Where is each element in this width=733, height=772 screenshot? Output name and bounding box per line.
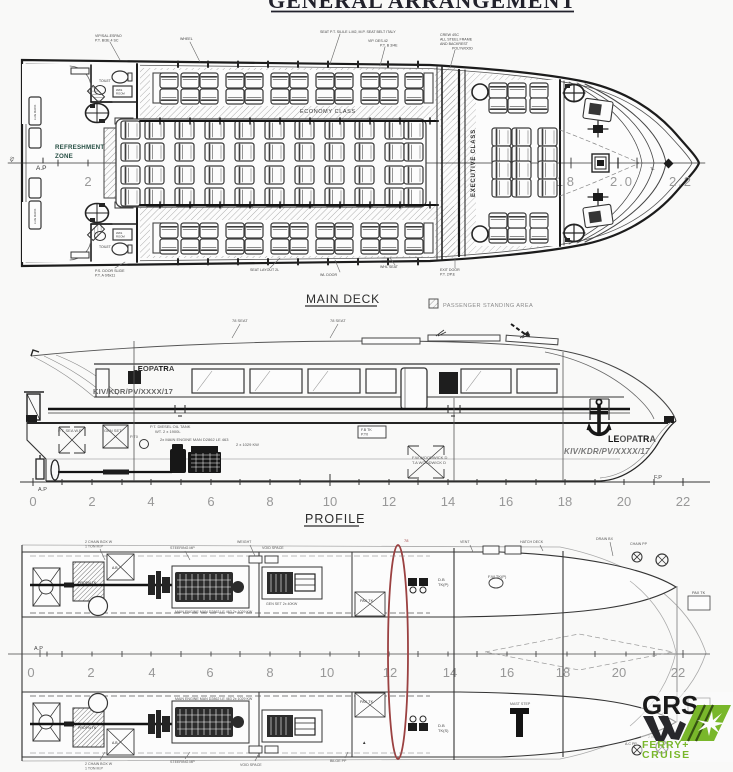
svg-text:A.P: A.P	[38, 487, 47, 493]
svg-text:P.T. SEA W.P: P.T. SEA W.P	[58, 428, 82, 433]
svg-text:1 TON M.P: 1 TON M.P	[85, 767, 103, 771]
svg-text:12: 12	[383, 665, 397, 680]
svg-text:2: 2	[84, 174, 91, 189]
svg-text:TOILET: TOILET	[99, 79, 111, 83]
svg-text:ZONE: ZONE	[55, 153, 73, 160]
svg-text:78 SEAT: 78 SEAT	[232, 318, 248, 323]
svg-text:AND BACKREST: AND BACKREST	[440, 42, 469, 46]
svg-text:F.W TK(P): F.W TK(P)	[488, 574, 507, 579]
svg-text:SEAT LAYOUT 2L: SEAT LAYOUT 2L	[250, 268, 279, 272]
svg-text:14: 14	[441, 494, 455, 509]
svg-text:MAIN DECK: MAIN DECK	[306, 292, 380, 306]
svg-text:WEIGHT: WEIGHT	[237, 540, 252, 544]
svg-text:P.T. B/3E 4 SC: P.T. B/3E 4 SC	[95, 39, 119, 43]
svg-text:F.B TK: F.B TK	[361, 428, 372, 432]
svg-text:KIV/KDR/PV/XXXX/17: KIV/KDR/PV/XXXX/17	[564, 447, 650, 456]
svg-text:16: 16	[499, 494, 513, 509]
svg-text:MAIN ENGINE MAN D2862 LE 463 2: MAIN ENGINE MAN D2862 LE 463 2x 1029 KW	[175, 610, 253, 614]
svg-text:8: 8	[266, 665, 273, 680]
svg-text:ROOM: ROOM	[116, 92, 125, 96]
svg-text:1 8: 1 8	[556, 174, 574, 189]
svg-text:16: 16	[500, 665, 514, 680]
svg-text:PASSENGER STANDING AREA: PASSENGER STANDING AREA	[443, 303, 533, 309]
svg-text:0: 0	[29, 494, 36, 509]
svg-text:LUG RACK: LUG RACK	[33, 105, 37, 120]
svg-text:GRS: GRS	[642, 690, 698, 720]
svg-text:LEOPATRA: LEOPATRA	[133, 364, 175, 373]
svg-text:ROOM: ROOM	[116, 235, 125, 239]
svg-text:HATCH DECK: HATCH DECK	[520, 540, 544, 544]
svg-text:2: 2	[88, 494, 95, 509]
svg-text:8: 8	[266, 494, 273, 509]
svg-text:TL: TL	[650, 166, 655, 171]
svg-text:PAX TK: PAX TK	[692, 591, 706, 595]
svg-text:P.T. B 3/4E: P.T. B 3/4E	[380, 44, 398, 48]
svg-text:A.P: A.P	[36, 165, 46, 172]
svg-text:78: 78	[404, 538, 409, 543]
svg-text:CREW 4SC: CREW 4SC	[440, 33, 459, 37]
svg-text:2.2: 2.2	[669, 174, 693, 189]
svg-text:0: 0	[27, 665, 34, 680]
svg-text:P.T0: P.T0	[361, 433, 368, 437]
svg-text:P.T0: P.T0	[130, 434, 139, 439]
svg-text:LEOPATRA: LEOPATRA	[608, 434, 656, 444]
svg-text:F.P: F.P	[654, 475, 662, 481]
svg-text:12: 12	[382, 494, 396, 509]
svg-text:22: 22	[671, 665, 685, 680]
svg-text:2 CHAIN BOX W: 2 CHAIN BOX W	[85, 540, 113, 544]
svg-text:WL DOOR: WL DOOR	[320, 273, 337, 277]
svg-text:LUG RACK: LUG RACK	[33, 209, 37, 224]
svg-text:2 CHAIN BOX W: 2 CHAIN BOX W	[85, 762, 113, 766]
svg-text:ALL STEEL FRAME: ALL STEEL FRAME	[440, 38, 473, 42]
svg-text:VOID SPACE: VOID SPACE	[240, 763, 262, 767]
svg-text:4: 4	[148, 665, 155, 680]
svg-text:STEERING MP: STEERING MP	[170, 760, 195, 764]
svg-text:CHAIN PP: CHAIN PP	[630, 542, 648, 546]
svg-text:6: 6	[206, 665, 213, 680]
svg-text:SEAT P.T. SILILE L.M2, M.P. SE: SEAT P.T. SILILE L.M2, M.P. SEAT BELT IT…	[320, 30, 396, 34]
svg-text:6: 6	[207, 494, 214, 509]
svg-text:WT. 2 x 1900L: WT. 2 x 1900L	[155, 429, 181, 434]
svg-text:1 TON M.P: 1 TON M.P	[85, 545, 103, 549]
svg-text:10: 10	[320, 665, 334, 680]
svg-text:P.T. 2/P.E: P.T. 2/P.E	[440, 273, 456, 277]
svg-text:▲: ▲	[362, 740, 366, 745]
svg-text:2 x 1029 KW: 2 x 1029 KW	[236, 442, 259, 447]
svg-text:4: 4	[147, 494, 154, 509]
svg-text:STEERING MP: STEERING MP	[170, 546, 195, 550]
svg-text:A.C PP: A.C PP	[625, 742, 637, 746]
svg-text:MAST STEP: MAST STEP	[510, 702, 531, 706]
svg-text:VOID SPACE: VOID SPACE	[262, 546, 284, 550]
svg-text:P.S. DOOR SLIDE: P.S. DOOR SLIDE	[95, 269, 125, 273]
svg-text:TK(S): TK(S)	[438, 728, 449, 733]
svg-text:78 SEAT: 78 SEAT	[330, 318, 346, 323]
svg-text:GEN SET 2x 40KW: GEN SET 2x 40KW	[266, 602, 298, 606]
svg-text:REFRESHMENT: REFRESHMENT	[55, 144, 104, 151]
svg-text:TK(P): TK(P)	[438, 582, 449, 587]
svg-text:A.B: A.B	[112, 741, 118, 745]
svg-text:VENT: VENT	[460, 540, 470, 544]
svg-text:VIP. DES.42: VIP. DES.42	[368, 39, 388, 43]
svg-text:PROP/4 TK: PROP/4 TK	[78, 726, 97, 730]
svg-text:A.P: A.P	[34, 646, 43, 652]
svg-text:A.B: A.B	[112, 566, 118, 570]
svg-text:WHL SEAT: WHL SEAT	[380, 265, 399, 269]
svg-text:2x MAIN ENGINE MAN D2862 LE 46: 2x MAIN ENGINE MAN D2862 LE 463	[160, 437, 229, 442]
svg-text:TOILET: TOILET	[99, 245, 111, 249]
svg-text:14: 14	[443, 665, 457, 680]
svg-text:VIP/SAL.ESPAO: VIP/SAL.ESPAO	[95, 34, 122, 38]
svg-text:ECONOMY CLASS: ECONOMY CLASS	[300, 109, 356, 115]
svg-text:GEN SET: GEN SET	[104, 428, 122, 433]
svg-text:10: 10	[323, 494, 337, 509]
svg-text:CRUISE: CRUISE	[642, 749, 691, 761]
svg-text:2.0: 2.0	[610, 174, 634, 189]
svg-text:MAIN ENGINE MAN D2862 LE 463 2: MAIN ENGINE MAN D2862 LE 463 2x 1029 KW	[175, 697, 253, 701]
svg-text:20: 20	[612, 665, 626, 680]
svg-text:EXECUTIVE CLASS: EXECUTIVE CLASS	[471, 129, 477, 197]
svg-text:EXIT DOOR: EXIT DOOR	[440, 268, 460, 272]
svg-text:P.T. A 0/6x11: P.T. A 0/6x11	[95, 274, 115, 278]
svg-text:22: 22	[676, 494, 690, 509]
svg-text:PROFILE: PROFILE	[305, 512, 366, 526]
svg-text:DRAIN BX: DRAIN BX	[596, 537, 614, 541]
svg-text:WHEEL: WHEEL	[180, 37, 193, 41]
svg-text:20: 20	[617, 494, 631, 509]
svg-text:BILGE PP: BILGE PP	[330, 759, 347, 763]
svg-text:KIV/KDR/PV/XXXX/17: KIV/KDR/PV/XXXX/17	[93, 387, 173, 396]
svg-text:2: 2	[87, 665, 94, 680]
svg-text:T.A WOODWICK D: T.A WOODWICK D	[412, 460, 446, 465]
svg-text:18: 18	[558, 494, 572, 509]
